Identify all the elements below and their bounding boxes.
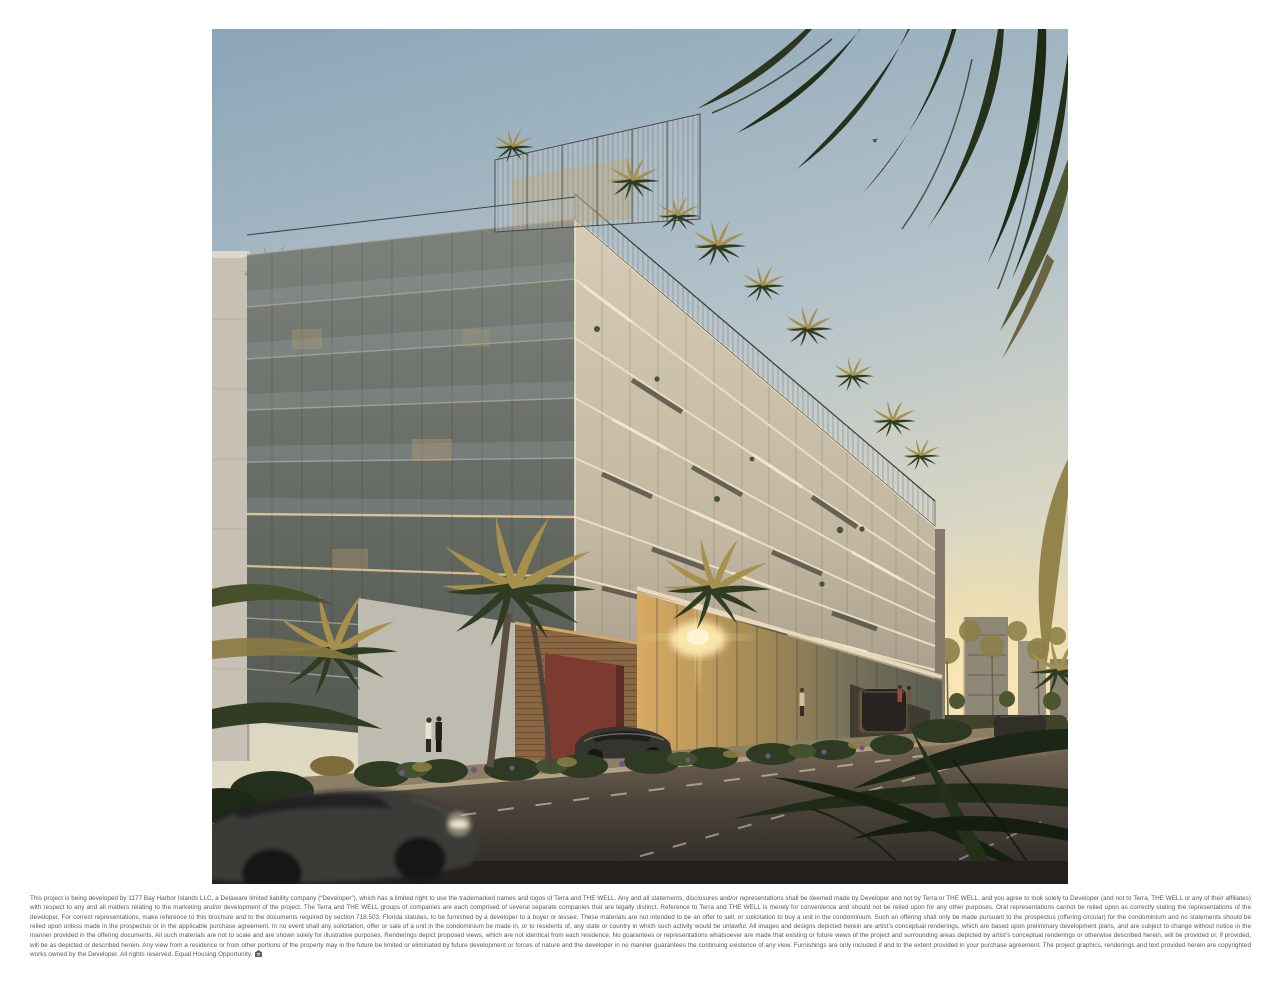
rendering-scene bbox=[212, 29, 1068, 884]
disclaimer-text: This project is being developed by 1177 … bbox=[30, 895, 1251, 958]
equal-housing-opportunity-icon bbox=[252, 951, 262, 958]
brochure-page: { "page": { "background": "#ffffff", "ki… bbox=[0, 0, 1280, 989]
bird bbox=[874, 140, 877, 143]
headlight bbox=[450, 820, 468, 828]
legal-disclaimer: This project is being developed by 1177 … bbox=[30, 894, 1251, 959]
property-rendering bbox=[212, 29, 1068, 884]
page-canvas: This project is being developed by 1177 … bbox=[0, 0, 1280, 989]
